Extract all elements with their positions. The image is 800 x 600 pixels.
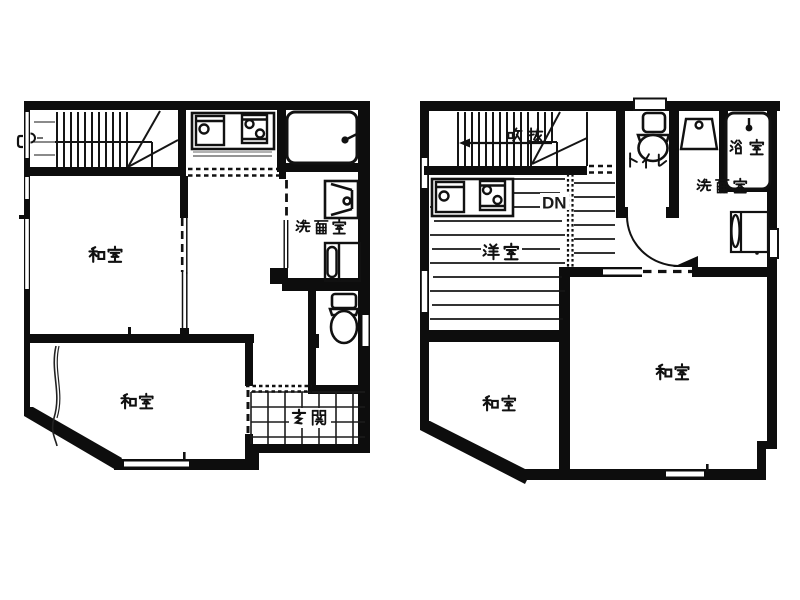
svg-text:DN: DN: [542, 194, 567, 213]
